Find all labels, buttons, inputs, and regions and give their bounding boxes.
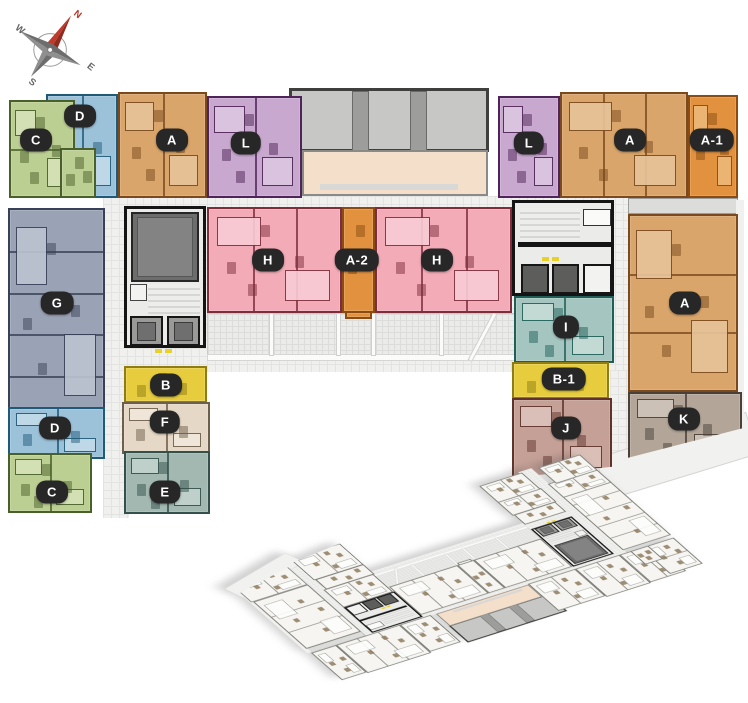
furniture [323,551,331,556]
furniture [623,505,631,510]
marker-dash [552,257,559,261]
terrace-divider [371,313,376,356]
unit-badge[interactable]: A [669,292,701,315]
furniture [546,505,554,510]
core-right-closet [583,209,611,226]
furniture [137,484,146,496]
furniture [261,225,270,237]
unit-room [534,157,554,186]
furniture [179,426,188,438]
unit-badge[interactable]: J [551,417,581,440]
furniture [700,296,709,308]
furniture [356,225,365,237]
unit-badge[interactable]: D [39,417,71,440]
core-left-shaft-inner [137,217,193,277]
unit-badge[interactable]: E [149,481,180,504]
furniture [506,478,514,483]
unit-room [572,336,605,355]
furniture [355,581,363,586]
unit-room [503,106,523,133]
furniture [432,626,440,631]
marker-dash [542,257,549,261]
furniture [23,318,32,330]
furniture [339,656,347,661]
furniture [516,480,524,485]
furniture [280,575,288,580]
unit-room [522,303,555,321]
furniture [602,516,610,521]
unit-badge[interactable]: K [668,408,700,431]
unit-room [454,270,499,301]
furniture [367,582,375,587]
unit-C[interactable] [60,148,96,198]
furniture [154,110,163,122]
furniture [637,553,645,558]
furniture [317,607,325,612]
lift-dark [521,264,549,294]
furniture [644,550,652,555]
furniture [23,434,32,446]
furniture [672,244,681,256]
terrace-mid [207,313,515,360]
unit-badge[interactable]: D [64,105,96,128]
furniture [574,581,582,586]
furniture [662,345,671,357]
unit-room [214,106,245,133]
core-right-wall [518,242,612,247]
unit-room [285,270,330,301]
furniture [330,576,338,581]
furniture [180,480,189,492]
furniture [417,284,426,296]
furniture [146,169,155,181]
unit-badge[interactable]: B-1 [542,368,586,391]
furniture [564,460,572,465]
furniture [236,171,245,183]
unit-room [169,155,198,186]
furniture [227,262,236,274]
lift-car [137,322,156,341]
furniture [419,633,427,638]
furniture [66,174,75,186]
floorplan-3d-transform [210,451,712,684]
furniture [21,484,30,496]
furniture [538,552,546,557]
unit-room [569,102,611,131]
furniture [312,562,320,567]
unit-badge[interactable]: H [252,249,284,272]
core-left-stairs [148,284,200,314]
floorplan-page: N E S W CDALLAA-1GHA-2HAIBB-1DFJKCE [0,0,748,703]
furniture [465,256,474,268]
furniture [553,590,561,595]
furniture [579,327,588,339]
furniture [620,567,628,572]
terrace-divider [269,313,274,356]
unit-badge[interactable]: L [231,132,261,155]
furniture [645,556,653,561]
furniture [588,475,596,480]
furniture [703,424,712,436]
furniture [397,638,405,643]
furniture [529,331,538,343]
unit-badge[interactable]: H [421,249,453,272]
unit-room [16,227,48,285]
unit-room [264,600,298,619]
furniture [222,149,231,161]
marker-dash [165,349,172,353]
amenity-table [320,184,458,190]
terrace-top [289,88,489,152]
furniture [708,113,717,125]
furniture [353,568,361,573]
furniture [612,110,621,122]
core-right-stairs [520,208,580,240]
floorplan-3d-render [225,436,697,700]
furniture [137,385,146,397]
unit-room [262,157,293,186]
unit-room [15,459,42,475]
unit-room [64,334,96,396]
furniture [574,461,582,466]
marker-dash [155,349,162,353]
furniture [454,579,462,584]
furniture [295,256,304,268]
core-right-cell [583,264,612,294]
furniture [533,494,541,499]
furniture [38,363,47,375]
unit-A2[interactable] [345,311,372,319]
furniture [430,225,439,237]
unit-room [131,458,159,475]
lift-dark [552,264,579,294]
balcony-strip [628,198,738,214]
furniture [539,512,547,517]
unit-room [125,102,154,131]
furniture [517,171,526,183]
terrace-pillar [352,91,369,151]
terrace-divider [439,313,444,356]
furniture [42,464,51,476]
unit-badge[interactable]: A-2 [335,249,379,272]
unit-room [691,320,727,372]
core-left-closet [130,284,147,301]
furniture [269,143,278,155]
furniture [606,564,614,569]
lift-car [174,322,193,341]
furniture [545,345,554,357]
furniture [343,591,351,596]
furniture [159,462,168,474]
furniture [579,147,588,159]
furniture [328,662,336,667]
terrace-pillar [410,91,427,151]
unit-room [217,217,262,246]
furniture [478,571,486,576]
unit-room [520,406,553,427]
furniture [297,599,305,604]
furniture [599,169,608,181]
furniture [336,553,344,558]
furniture [396,262,405,274]
unit-badge[interactable]: F [150,411,180,434]
furniture [526,512,534,517]
unit-room [717,156,733,186]
unit-room [634,155,676,186]
unit-badge[interactable]: B [150,374,182,397]
furniture [75,157,84,169]
floorplan-3d-content [210,451,737,703]
unit-badge[interactable]: C [20,129,52,152]
unit-badge[interactable]: I [553,316,579,339]
furniture [136,429,145,441]
terrace-divider [336,313,341,356]
furniture [523,114,532,126]
furniture [248,284,257,296]
furniture [599,576,607,581]
furniture [485,582,493,587]
unit-room [629,516,662,536]
furniture [132,147,141,159]
furniture [20,151,29,163]
unit-room [636,230,672,279]
unit-badge[interactable]: G [41,292,74,315]
furniture [245,114,254,126]
furniture [421,622,429,627]
furniture [36,117,45,129]
unit-badge[interactable]: A [614,129,646,152]
unit-badge[interactable]: L [514,132,544,155]
furniture [561,578,569,583]
furniture [293,618,301,623]
furniture [663,545,671,550]
furniture [345,575,353,580]
furniture [71,431,80,443]
unit-badge[interactable]: C [36,481,68,504]
furniture [645,306,654,318]
furniture [496,487,504,492]
furniture [527,381,536,393]
unit-badge[interactable]: A [156,129,188,152]
furniture [83,171,92,183]
furniture [47,243,56,255]
furniture [602,496,610,501]
furniture [30,172,39,184]
unit-room [385,217,430,246]
unit-badge[interactable]: A-1 [690,129,734,152]
